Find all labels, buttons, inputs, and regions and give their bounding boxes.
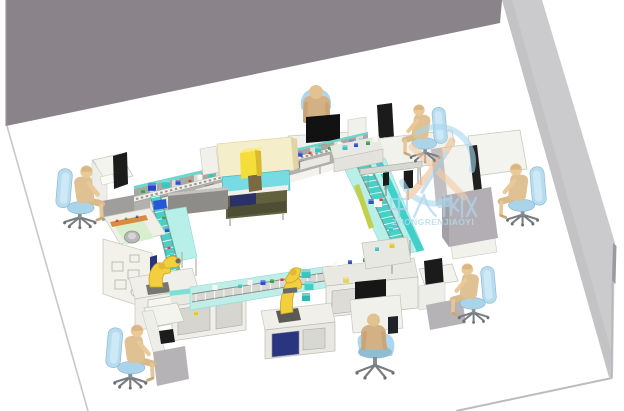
svg-text:ZHONGRENJIAOYI: ZHONGRENJIAOYI — [392, 217, 474, 227]
